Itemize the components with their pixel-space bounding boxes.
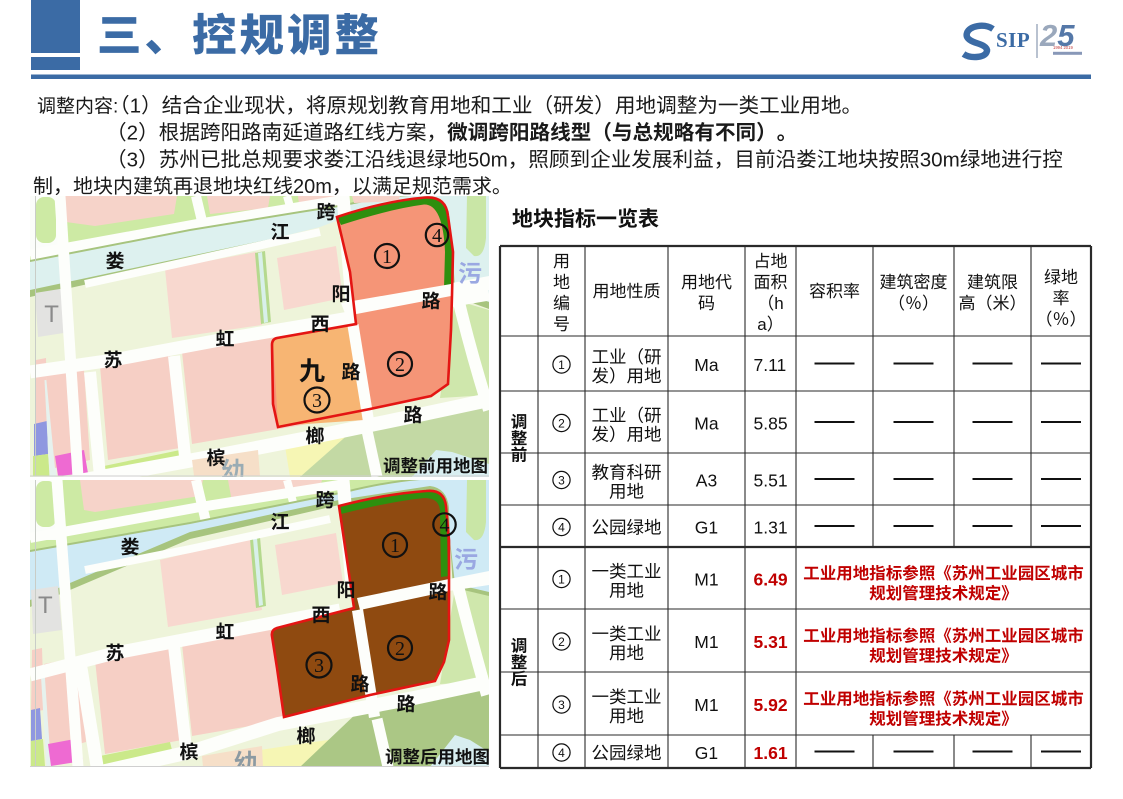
svg-text:20m: 20m [293, 176, 332, 198]
svg-text:3: 3 [558, 473, 565, 487]
svg-text:M1: M1 [694, 632, 718, 652]
svg-text:G1: G1 [695, 518, 718, 538]
svg-text:T: T [44, 301, 59, 328]
svg-text:M1: M1 [694, 695, 718, 715]
svg-text::: : [113, 97, 118, 118]
svg-text:2: 2 [395, 354, 405, 376]
svg-text:30m: 30m [920, 149, 960, 172]
svg-text:2: 2 [395, 638, 405, 660]
svg-text:3: 3 [312, 390, 322, 412]
svg-text:T: T [38, 592, 53, 619]
svg-text:M1: M1 [694, 570, 718, 590]
svg-text:4: 4 [440, 515, 450, 537]
svg-text:4: 4 [558, 746, 565, 760]
svg-text:5.92: 5.92 [754, 695, 788, 715]
svg-text:7.11: 7.11 [754, 355, 787, 375]
svg-text:1.31: 1.31 [754, 518, 788, 538]
svg-text:4: 4 [432, 225, 442, 247]
svg-text:A3: A3 [696, 471, 717, 491]
svg-text:5.85: 5.85 [754, 414, 788, 434]
svg-text:3: 3 [558, 698, 565, 712]
svg-text:1.61: 1.61 [754, 743, 788, 763]
svg-text:4: 4 [558, 520, 565, 534]
svg-text:SIP: SIP [996, 28, 1030, 52]
svg-text:G1: G1 [695, 743, 718, 763]
svg-text:1: 1 [382, 246, 392, 268]
svg-text:1994 2019: 1994 2019 [1053, 45, 1073, 50]
svg-text:Ma: Ma [694, 355, 719, 375]
svg-text:3: 3 [127, 149, 138, 172]
svg-text:2: 2 [558, 416, 565, 430]
svg-text:5.31: 5.31 [754, 632, 788, 652]
svg-text:Ma: Ma [694, 414, 719, 434]
svg-text:2: 2 [558, 635, 565, 649]
svg-text:h: h [774, 294, 783, 313]
svg-text:a: a [757, 315, 767, 334]
svg-text:1: 1 [558, 358, 565, 372]
svg-text:1: 1 [390, 535, 400, 557]
svg-text:5.51: 5.51 [754, 471, 788, 491]
svg-text:2: 2 [127, 122, 138, 145]
svg-text:1: 1 [558, 572, 565, 586]
svg-text:1: 1 [130, 95, 141, 118]
svg-text:50m: 50m [468, 149, 508, 172]
svg-text:6.49: 6.49 [754, 570, 788, 590]
svg-text:3: 3 [314, 655, 324, 677]
